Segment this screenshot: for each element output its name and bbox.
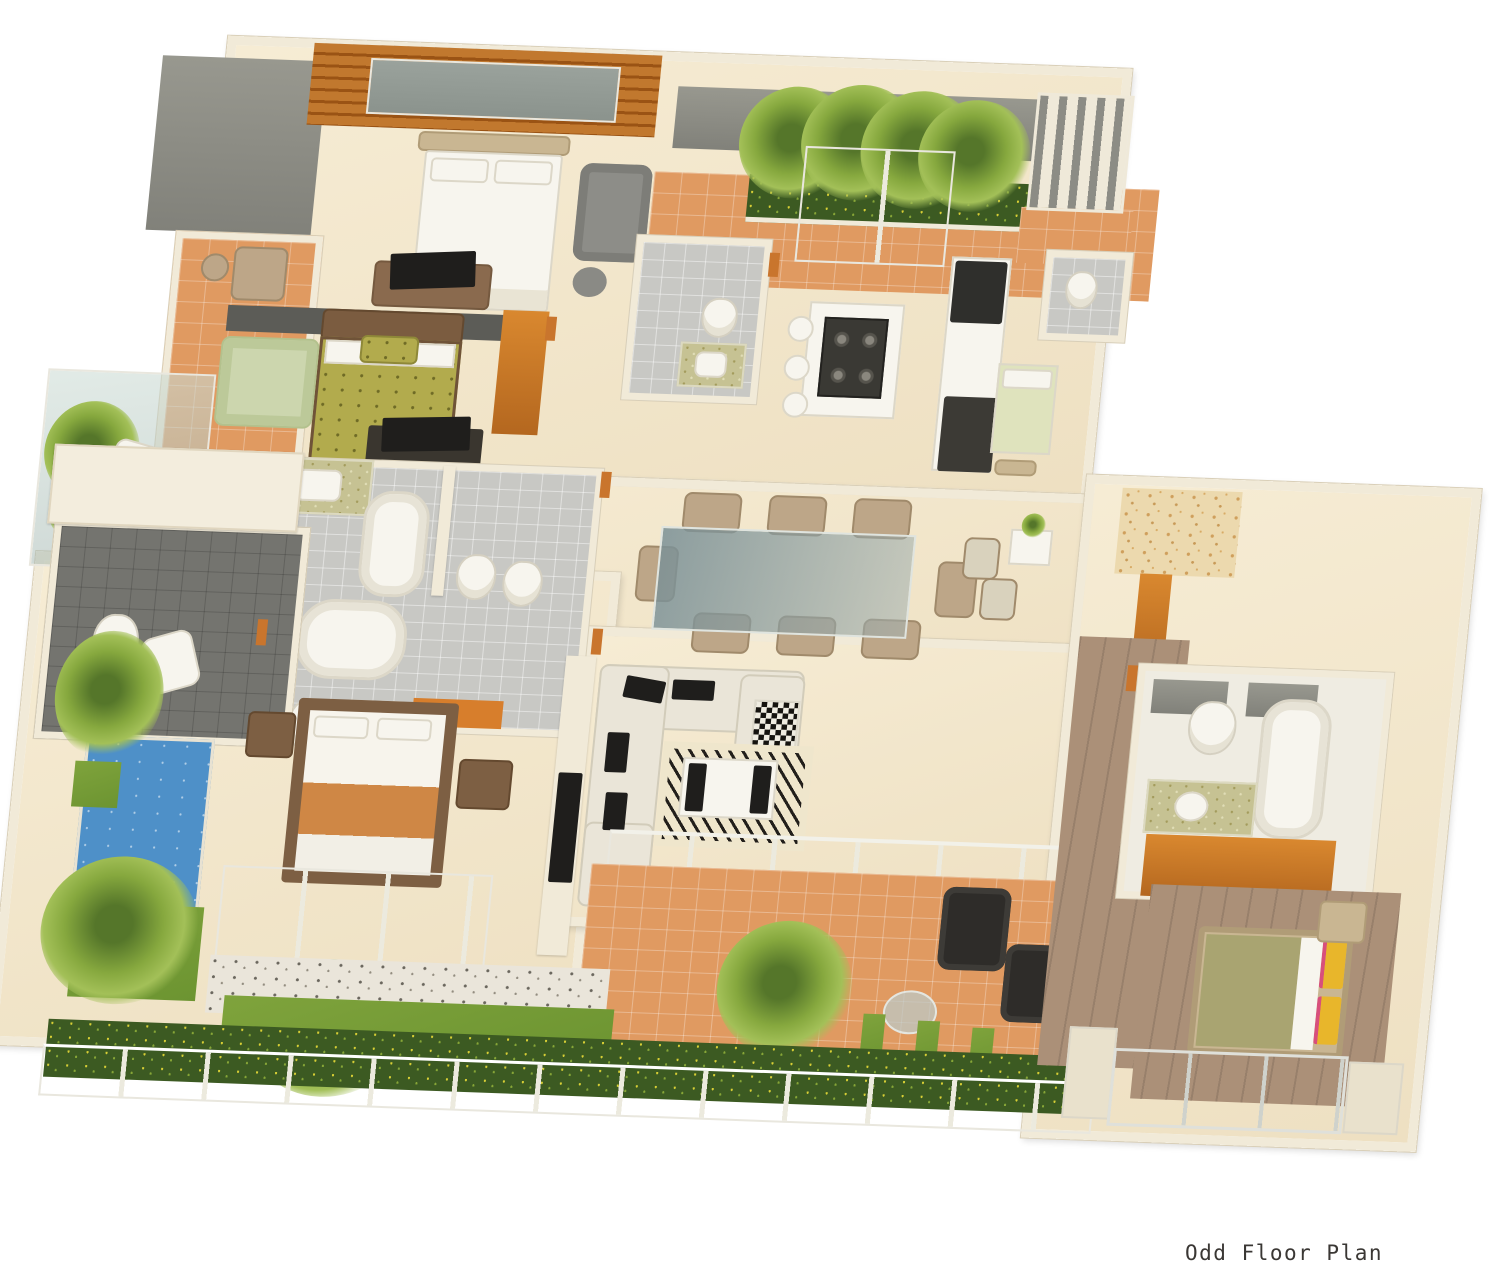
nook-chair [978, 578, 1018, 621]
apartment-plan [0, 13, 1489, 1181]
bedroom2-pillow [359, 335, 420, 365]
guest-glass-panels [1106, 1048, 1349, 1134]
bedroom1-tv [390, 251, 476, 290]
canopy-slab [47, 444, 305, 533]
bed-pillow [313, 715, 370, 739]
jacuzzi-tub [292, 598, 410, 682]
yellow-pillow [1319, 940, 1348, 989]
dining-glass-table [651, 526, 916, 639]
maid-bed-pillow [1001, 368, 1053, 390]
planter-box [1342, 1061, 1404, 1135]
bed-pillow [493, 160, 553, 186]
bedroom1-window [366, 58, 621, 123]
guest-bed-duvet [1195, 934, 1301, 1049]
terrace-armchair [936, 886, 1012, 971]
sofa-black-cushion [602, 792, 628, 831]
sofa-black-cushion [604, 732, 630, 773]
kitchen-gas-hob [817, 317, 889, 399]
exterior-gray-wall [146, 55, 328, 236]
bed-pillow [376, 718, 433, 742]
kitchen-fridge [937, 396, 998, 473]
patterned-throw [750, 699, 801, 751]
bed-pillow [429, 157, 489, 183]
caption-odd-floor-plan: Odd Floor Plan [1185, 1241, 1383, 1265]
guest-bathtub [1250, 698, 1334, 840]
foyer-pattern-floor [1114, 488, 1242, 578]
green-armchair [213, 336, 320, 429]
kitchen-appliance [950, 260, 1008, 324]
guest-nightstand [1316, 900, 1368, 944]
maid-bench [994, 459, 1038, 476]
powder-room-basin [694, 351, 729, 378]
bedroom2-tv [381, 417, 471, 452]
pool-lawn-patch [71, 761, 122, 809]
nightstand [455, 759, 514, 811]
nook-chair [961, 537, 1001, 580]
yellow-pillow [1313, 996, 1342, 1045]
balcony-armchair [230, 246, 289, 302]
sofa-black-cushion [671, 679, 715, 700]
nightstand [244, 711, 297, 759]
floor-plan-render: Odd Floor Plan [0, 0, 1500, 1271]
entry-glass-sliding-door [794, 146, 955, 267]
louvered-screen [1026, 92, 1135, 213]
